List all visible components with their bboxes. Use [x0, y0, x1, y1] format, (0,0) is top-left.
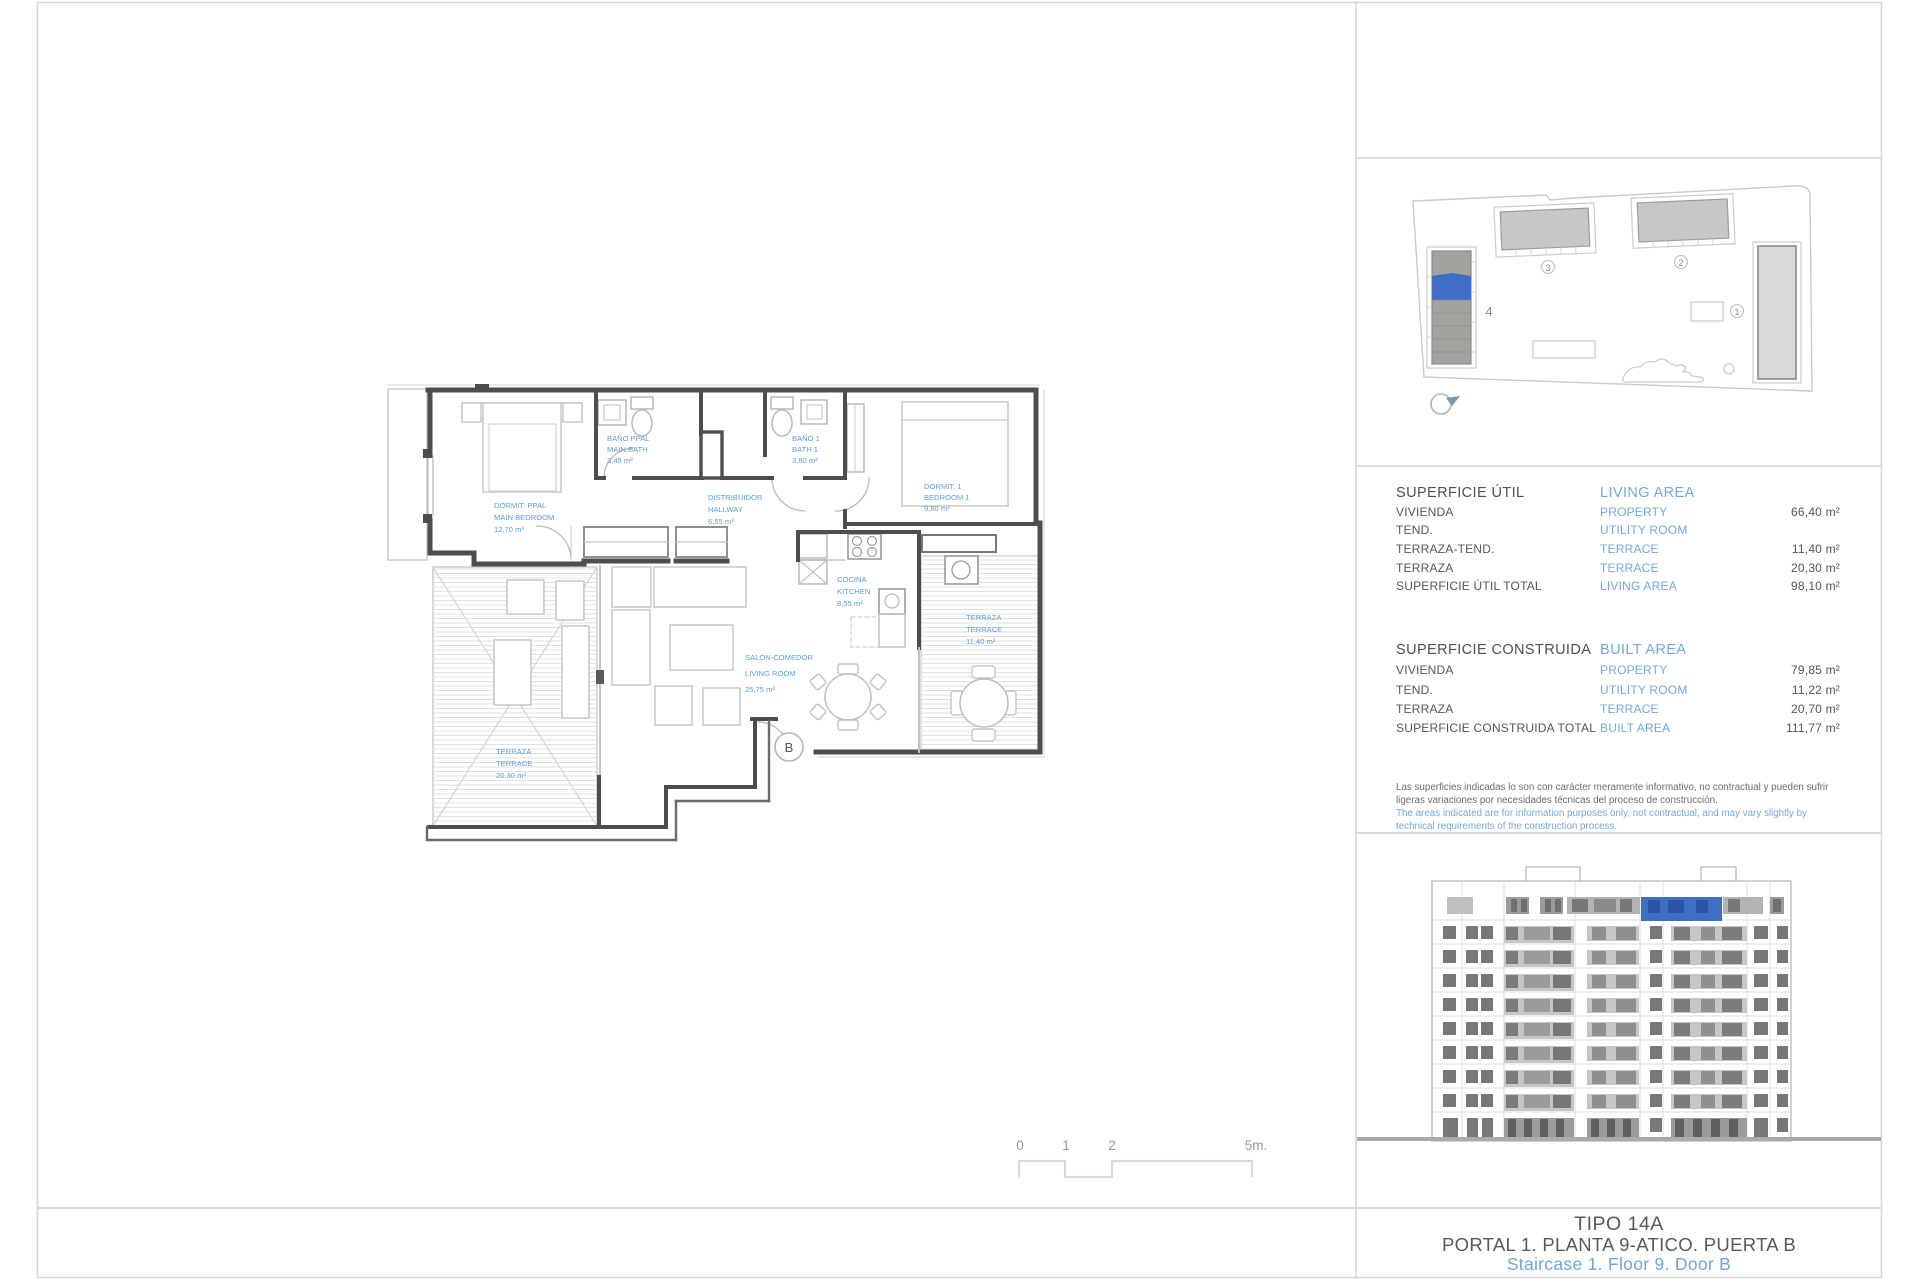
svg-text:TIPO 14A: TIPO 14A: [1574, 1213, 1664, 1235]
svg-text:VIVIENDA: VIVIENDA: [1396, 663, 1454, 677]
svg-text:MAIN BATH: MAIN BATH: [607, 445, 648, 454]
svg-text:ligeras variaciones por necesi: ligeras variaciones por necesidades técn…: [1396, 795, 1718, 806]
svg-text:25,75 m²: 25,75 m²: [745, 685, 775, 694]
svg-text:BUILT AREA: BUILT AREA: [1600, 642, 1686, 658]
svg-text:TERRACE: TERRACE: [1600, 542, 1659, 556]
svg-text:TERRAZA: TERRAZA: [966, 613, 1002, 622]
svg-text:2: 2: [1678, 258, 1683, 268]
svg-text:12,70 m²: 12,70 m²: [494, 525, 524, 534]
svg-text:20,30 m²: 20,30 m²: [1791, 561, 1840, 575]
svg-text:LIVING AREA: LIVING AREA: [1600, 579, 1677, 593]
svg-text:BATH 1: BATH 1: [792, 445, 818, 454]
svg-text:The areas indicated are for in: The areas indicated are for information …: [1396, 808, 1807, 819]
svg-text:UTILITY ROOM: UTILITY ROOM: [1600, 683, 1688, 697]
svg-text:4: 4: [1485, 304, 1492, 319]
svg-text:SUPERFICIE ÚTIL: SUPERFICIE ÚTIL: [1396, 484, 1524, 501]
svg-text:TEND.: TEND.: [1396, 523, 1433, 537]
svg-text:0: 0: [1016, 1138, 1024, 1153]
svg-text:1: 1: [1734, 307, 1739, 317]
svg-text:LIVING AREA: LIVING AREA: [1600, 485, 1695, 501]
svg-text:1: 1: [1062, 1138, 1070, 1153]
svg-text:UTILITY ROOM: UTILITY ROOM: [1600, 523, 1688, 537]
svg-text:SUPERFICIE ÚTIL TOTAL: SUPERFICIE ÚTIL TOTAL: [1396, 578, 1542, 593]
svg-text:9,80 m²: 9,80 m²: [924, 504, 950, 513]
svg-text:TEND.: TEND.: [1396, 683, 1433, 697]
svg-text:LIVING ROOM: LIVING ROOM: [745, 669, 796, 678]
svg-text:3: 3: [1545, 263, 1550, 273]
svg-text:B: B: [785, 740, 794, 755]
svg-text:TERRACE: TERRACE: [1600, 561, 1659, 575]
svg-text:11,40 m²: 11,40 m²: [966, 637, 996, 646]
svg-text:66,40 m²: 66,40 m²: [1791, 505, 1840, 519]
svg-text:Las superficies indicadas lo s: Las superficies indicadas lo son con car…: [1396, 782, 1829, 793]
svg-text:Staircase 1. Floor 9. Door B: Staircase 1. Floor 9. Door B: [1507, 1254, 1731, 1274]
svg-text:2: 2: [1108, 1138, 1116, 1153]
svg-text:SALON-COMEDOR: SALON-COMEDOR: [745, 653, 813, 662]
svg-text:MAIN BEDROOM: MAIN BEDROOM: [494, 513, 554, 522]
svg-text:TERRAZA: TERRAZA: [496, 747, 532, 756]
svg-text:TERRAZA-TEND.: TERRAZA-TEND.: [1396, 542, 1495, 556]
svg-text:3,45 m²: 3,45 m²: [607, 456, 633, 465]
svg-text:20,30 m²: 20,30 m²: [496, 771, 526, 780]
svg-text:BEDROOM 1: BEDROOM 1: [924, 493, 970, 502]
svg-text:TERRACE: TERRACE: [966, 625, 1002, 634]
svg-text:11,22 m²: 11,22 m²: [1792, 683, 1840, 697]
svg-text:SUPERFICIE CONSTRUIDA: SUPERFICIE CONSTRUIDA: [1396, 642, 1591, 658]
svg-text:79,85 m²: 79,85 m²: [1791, 663, 1840, 677]
svg-text:5m.: 5m.: [1245, 1138, 1268, 1153]
svg-text:8,55 m²: 8,55 m²: [837, 599, 863, 608]
svg-text:BAÑO PPAL: BAÑO PPAL: [607, 434, 650, 443]
svg-text:3,80 m²: 3,80 m²: [792, 456, 818, 465]
svg-text:KITCHEN: KITCHEN: [837, 587, 870, 596]
svg-text:DORMIT. 1: DORMIT. 1: [924, 482, 962, 491]
svg-text:COCINA: COCINA: [837, 575, 867, 584]
svg-text:HALLWAY: HALLWAY: [708, 505, 743, 514]
svg-text:11,40 m²: 11,40 m²: [1792, 542, 1840, 556]
svg-text:PROPERTY: PROPERTY: [1600, 663, 1667, 677]
svg-text:PROPERTY: PROPERTY: [1600, 505, 1667, 519]
svg-text:TERRACE: TERRACE: [1600, 702, 1659, 716]
svg-text:BUILT AREA: BUILT AREA: [1600, 721, 1670, 735]
svg-text:BAÑO 1: BAÑO 1: [792, 434, 820, 443]
svg-text:111,77 m²: 111,77 m²: [1786, 721, 1840, 735]
svg-text:PORTAL 1. PLANTA 9-ATICO. PUER: PORTAL 1. PLANTA 9-ATICO. PUERTA B: [1442, 1234, 1796, 1255]
svg-text:TERRACE: TERRACE: [496, 759, 532, 768]
svg-text:DISTRIBUIDOR: DISTRIBUIDOR: [708, 493, 763, 502]
svg-text:SUPERFICIE CONSTRUIDA TOTAL: SUPERFICIE CONSTRUIDA TOTAL: [1396, 721, 1596, 735]
svg-text:98,10 m²: 98,10 m²: [1791, 579, 1840, 593]
svg-text:20,70 m²: 20,70 m²: [1791, 702, 1840, 716]
svg-text:6,55 m²: 6,55 m²: [708, 517, 734, 526]
svg-text:VIVIENDA: VIVIENDA: [1396, 505, 1454, 519]
svg-text:technical requirements of the: technical requirements of the constructi…: [1396, 821, 1617, 832]
svg-text:DORMIT. PPAL: DORMIT. PPAL: [494, 501, 546, 510]
svg-text:TERRAZA: TERRAZA: [1396, 561, 1453, 575]
svg-text:TERRAZA: TERRAZA: [1396, 702, 1453, 716]
